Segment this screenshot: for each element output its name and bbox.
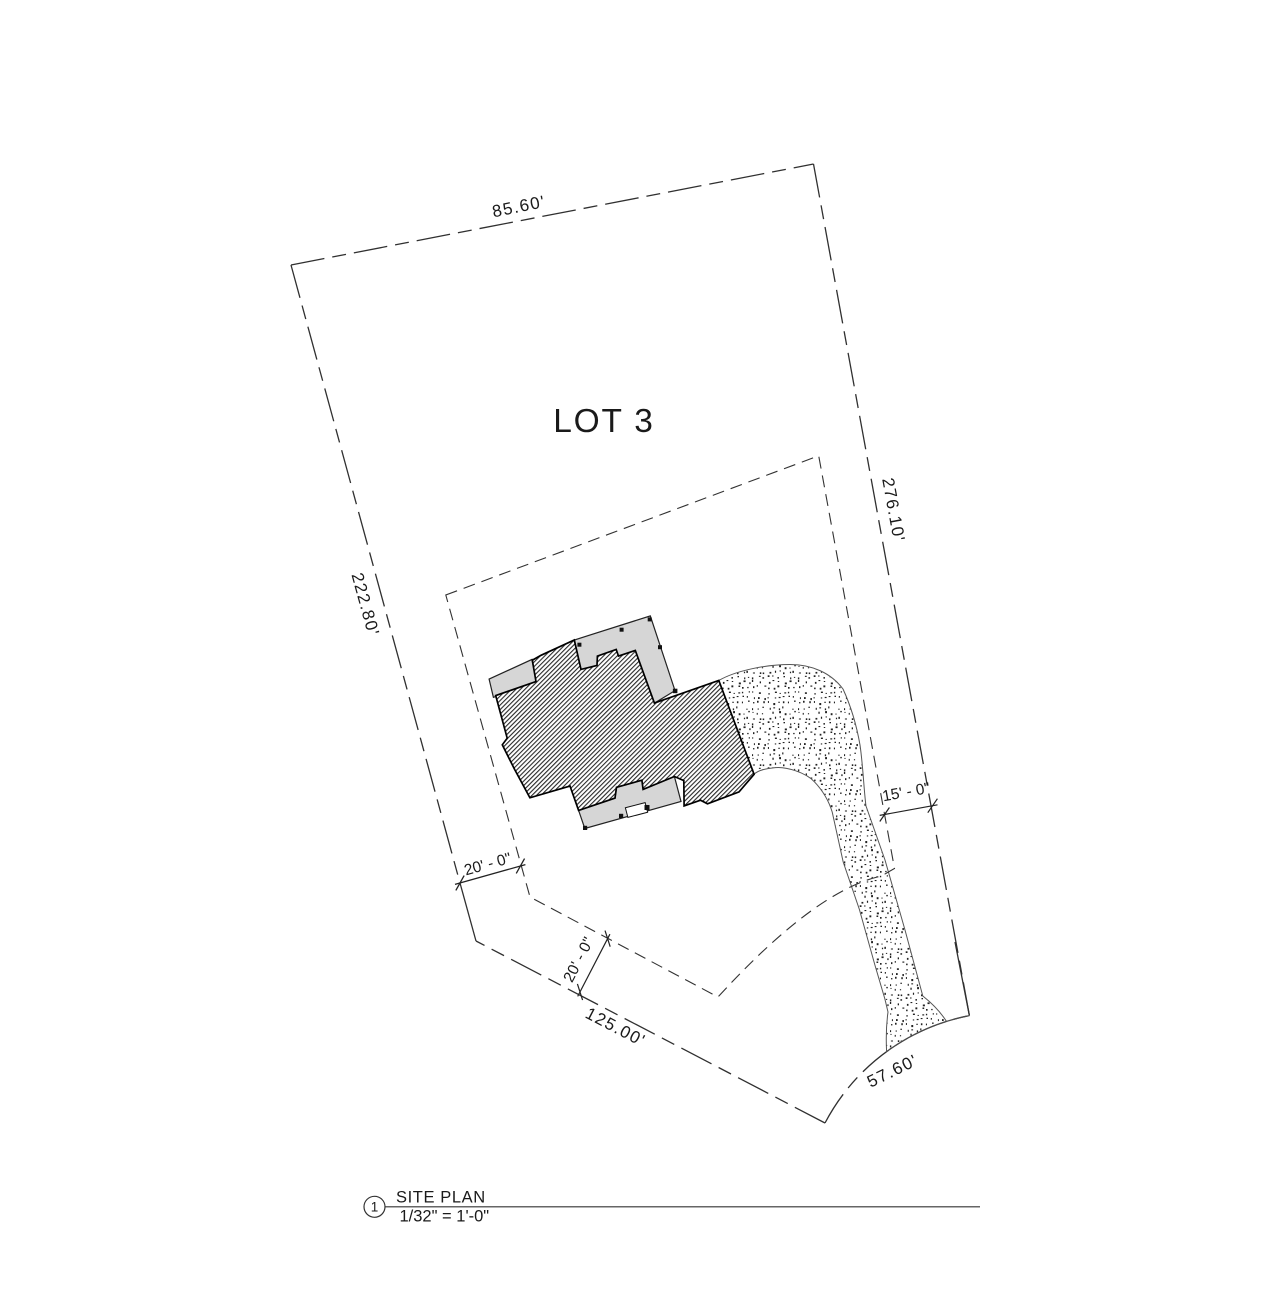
svg-text:1/32" = 1'-0": 1/32" = 1'-0" <box>400 1208 490 1226</box>
svg-text:1: 1 <box>371 1200 379 1215</box>
svg-text:LOT 3: LOT 3 <box>553 403 655 440</box>
svg-text:SITE PLAN: SITE PLAN <box>396 1189 486 1207</box>
